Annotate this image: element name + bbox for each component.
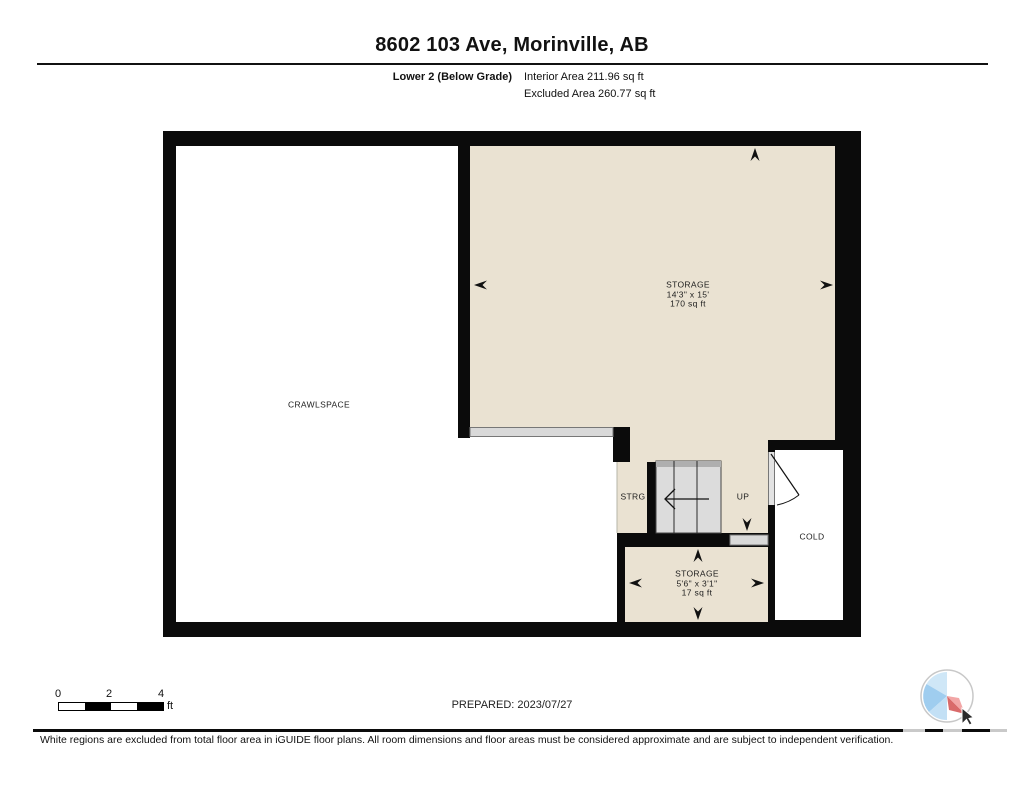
wall-stub [613, 427, 630, 462]
wall-storage-right-double [835, 146, 845, 440]
footer-divider-gap [903, 729, 925, 732]
wall-crawlspace-storage [458, 146, 470, 438]
prepared-date-text: PREPARED: 2023/07/27 [0, 699, 1024, 711]
opening-cold-door-gap [769, 452, 775, 505]
wall-stairs-bottom [617, 533, 730, 547]
wall-cold-top [768, 440, 843, 450]
opening-below-up [730, 535, 768, 545]
footer-divider-line [33, 729, 990, 732]
stairs-tread-area [656, 461, 721, 533]
label-storage-small-area: 17 sq ft [682, 587, 713, 597]
iguide-logo [915, 666, 979, 730]
label-storage-main-area: 170 sq ft [670, 298, 706, 308]
label-storage-main: STORAGE [666, 279, 710, 289]
wall-storage-small-left [617, 547, 625, 622]
label-up: UP [737, 491, 750, 501]
room-storage-main [470, 146, 835, 427]
room-crawlspace-extension [458, 437, 617, 622]
label-strg: STRG [620, 491, 645, 501]
label-crawlspace: CRAWLSPACE [288, 399, 350, 409]
opening-storage-bottom [470, 428, 613, 437]
footer-divider-gap [990, 729, 1007, 732]
stairs-top-band [656, 461, 721, 467]
room-crawlspace [176, 146, 458, 622]
label-cold: COLD [799, 531, 824, 541]
footer-divider-gap [943, 729, 962, 732]
room-corridor-row [630, 440, 768, 462]
disclaimer-text: White regions are excluded from total fl… [40, 734, 1020, 746]
floor-plan: CRAWLSPACE STORAGE 14'3" x 15' 170 sq ft… [0, 0, 1024, 791]
room-storage-main-lower-strip [630, 427, 835, 440]
label-storage-small: STORAGE [675, 568, 719, 578]
wall-stairs-left [647, 462, 656, 533]
